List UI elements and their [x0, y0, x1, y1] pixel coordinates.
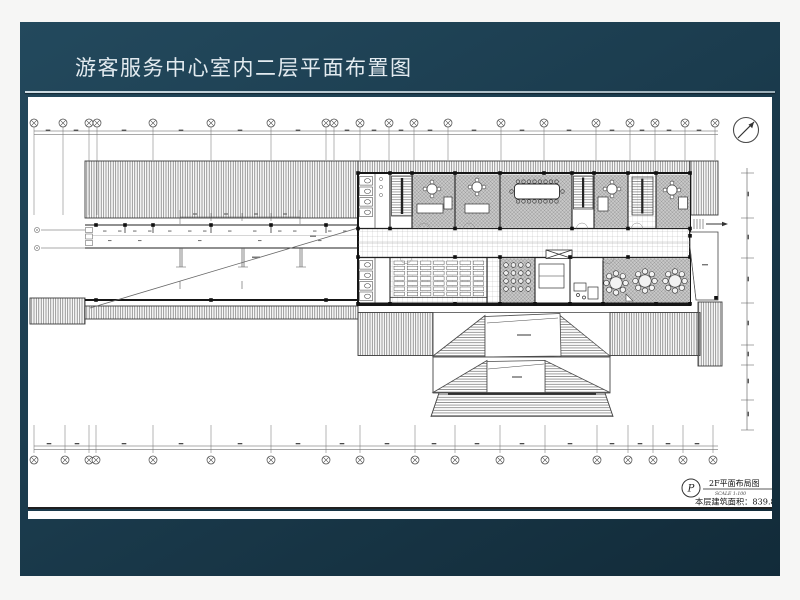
slide-title: 游客服务中心室内二层平面布置图	[75, 52, 413, 82]
central-building	[356, 171, 692, 305]
sheet-footer-strip	[28, 511, 772, 519]
slide: 游客服务中心室内二层平面布置图	[20, 22, 780, 576]
left-mini-dims	[34, 227, 85, 250]
hip-roof	[431, 313, 613, 417]
drawing-sheet: P 2F平面布局图 SCALE 1:100 本层建筑面积：839.8m²	[28, 97, 772, 509]
grid-bubbles-top	[30, 119, 719, 127]
auditorium-floor	[391, 259, 488, 304]
floor-area-text: 本层建筑面积：839.8m²	[695, 497, 772, 507]
left-wing	[34, 210, 358, 308]
dimension-line-right	[741, 168, 754, 430]
title-block: P 2F平面布局图 SCALE 1:100 本层建筑面积：839.8m²	[682, 478, 772, 507]
drawing-number-symbol: P	[687, 484, 695, 495]
dimension-line-bottom	[30, 425, 718, 464]
presentation-page: 游客服务中心室内二层平面布置图	[0, 0, 800, 600]
walkway-annotation-marks	[103, 231, 347, 259]
shaft-x	[546, 250, 572, 259]
floor-plan-svg: P 2F平面布局图 SCALE 1:100 本层建筑面积：839.8m²	[28, 97, 772, 507]
title-divider	[25, 91, 775, 93]
north-arrow-icon	[734, 118, 759, 143]
drawing-title: 2F平面布局图	[709, 478, 760, 488]
grid-bubbles-bottom	[30, 456, 717, 464]
right-annex	[688, 219, 728, 300]
dimension-text-marks-bottom	[47, 443, 700, 444]
